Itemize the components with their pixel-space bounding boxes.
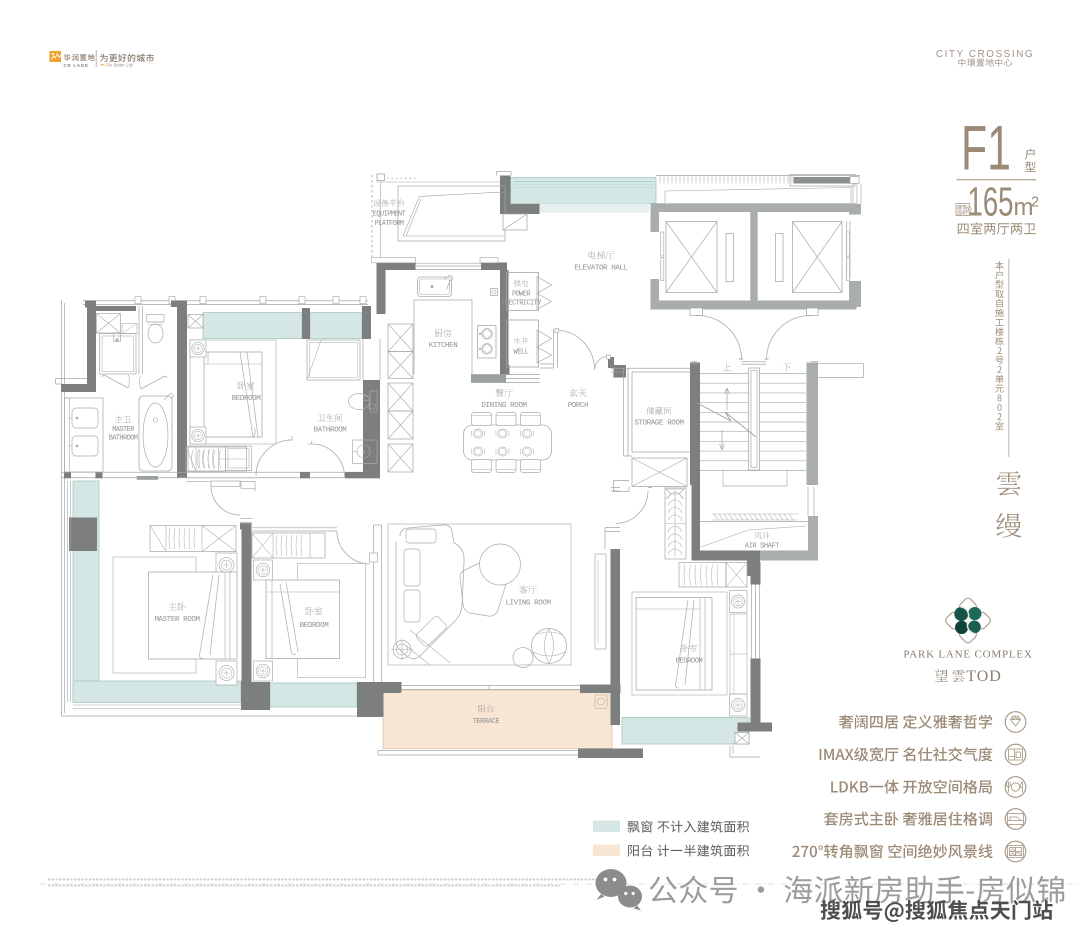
svg-text:BATHROOM: BATHROOM bbox=[314, 427, 348, 435]
svg-text:LIVING ROOM: LIVING ROOM bbox=[505, 600, 551, 608]
svg-text:WELL: WELL bbox=[513, 349, 528, 357]
svg-text:DINING ROOM: DINING ROOM bbox=[481, 402, 527, 410]
svg-text:PLATFORM: PLATFORM bbox=[375, 220, 404, 228]
svg-text:2: 2 bbox=[1031, 195, 1039, 211]
svg-text:MASTER: MASTER bbox=[112, 426, 135, 434]
svg-text:MASTER ROOM: MASTER ROOM bbox=[154, 616, 200, 624]
svg-text:AIR SHAFT: AIR SHAFT bbox=[745, 543, 779, 551]
svg-text:For Better City: For Better City bbox=[106, 63, 134, 68]
svg-text:TERRACE: TERRACE bbox=[473, 718, 500, 726]
svg-text:PORCH: PORCH bbox=[568, 402, 589, 410]
svg-text:PARK LANE COMPLEX: PARK LANE COMPLEX bbox=[903, 649, 1032, 661]
svg-text:BEDROOM: BEDROOM bbox=[676, 658, 703, 666]
svg-text:TOD: TOD bbox=[966, 668, 1002, 685]
svg-text:KITCHEN: KITCHEN bbox=[429, 342, 458, 350]
svg-text:BATHROOM: BATHROOM bbox=[109, 435, 138, 443]
svg-text:F1: F1 bbox=[961, 114, 1011, 184]
svg-text:165: 165 bbox=[968, 179, 1014, 225]
svg-text:EQUIPMENT: EQUIPMENT bbox=[373, 211, 406, 219]
svg-text:BEDROOM: BEDROOM bbox=[232, 395, 262, 403]
svg-text:BEDROOM: BEDROOM bbox=[300, 622, 330, 630]
svg-text:STORAGE ROOM: STORAGE ROOM bbox=[634, 420, 684, 428]
svg-text:CITY CROSSING: CITY CROSSING bbox=[936, 49, 1034, 60]
svg-text:ELECTRICITY: ELECTRICITY bbox=[501, 300, 542, 308]
svg-text:ELEVATOR HALL: ELEVATOR HALL bbox=[574, 265, 628, 273]
svg-text:CR LAND: CR LAND bbox=[64, 63, 89, 68]
svg-text:POWER: POWER bbox=[512, 291, 531, 299]
